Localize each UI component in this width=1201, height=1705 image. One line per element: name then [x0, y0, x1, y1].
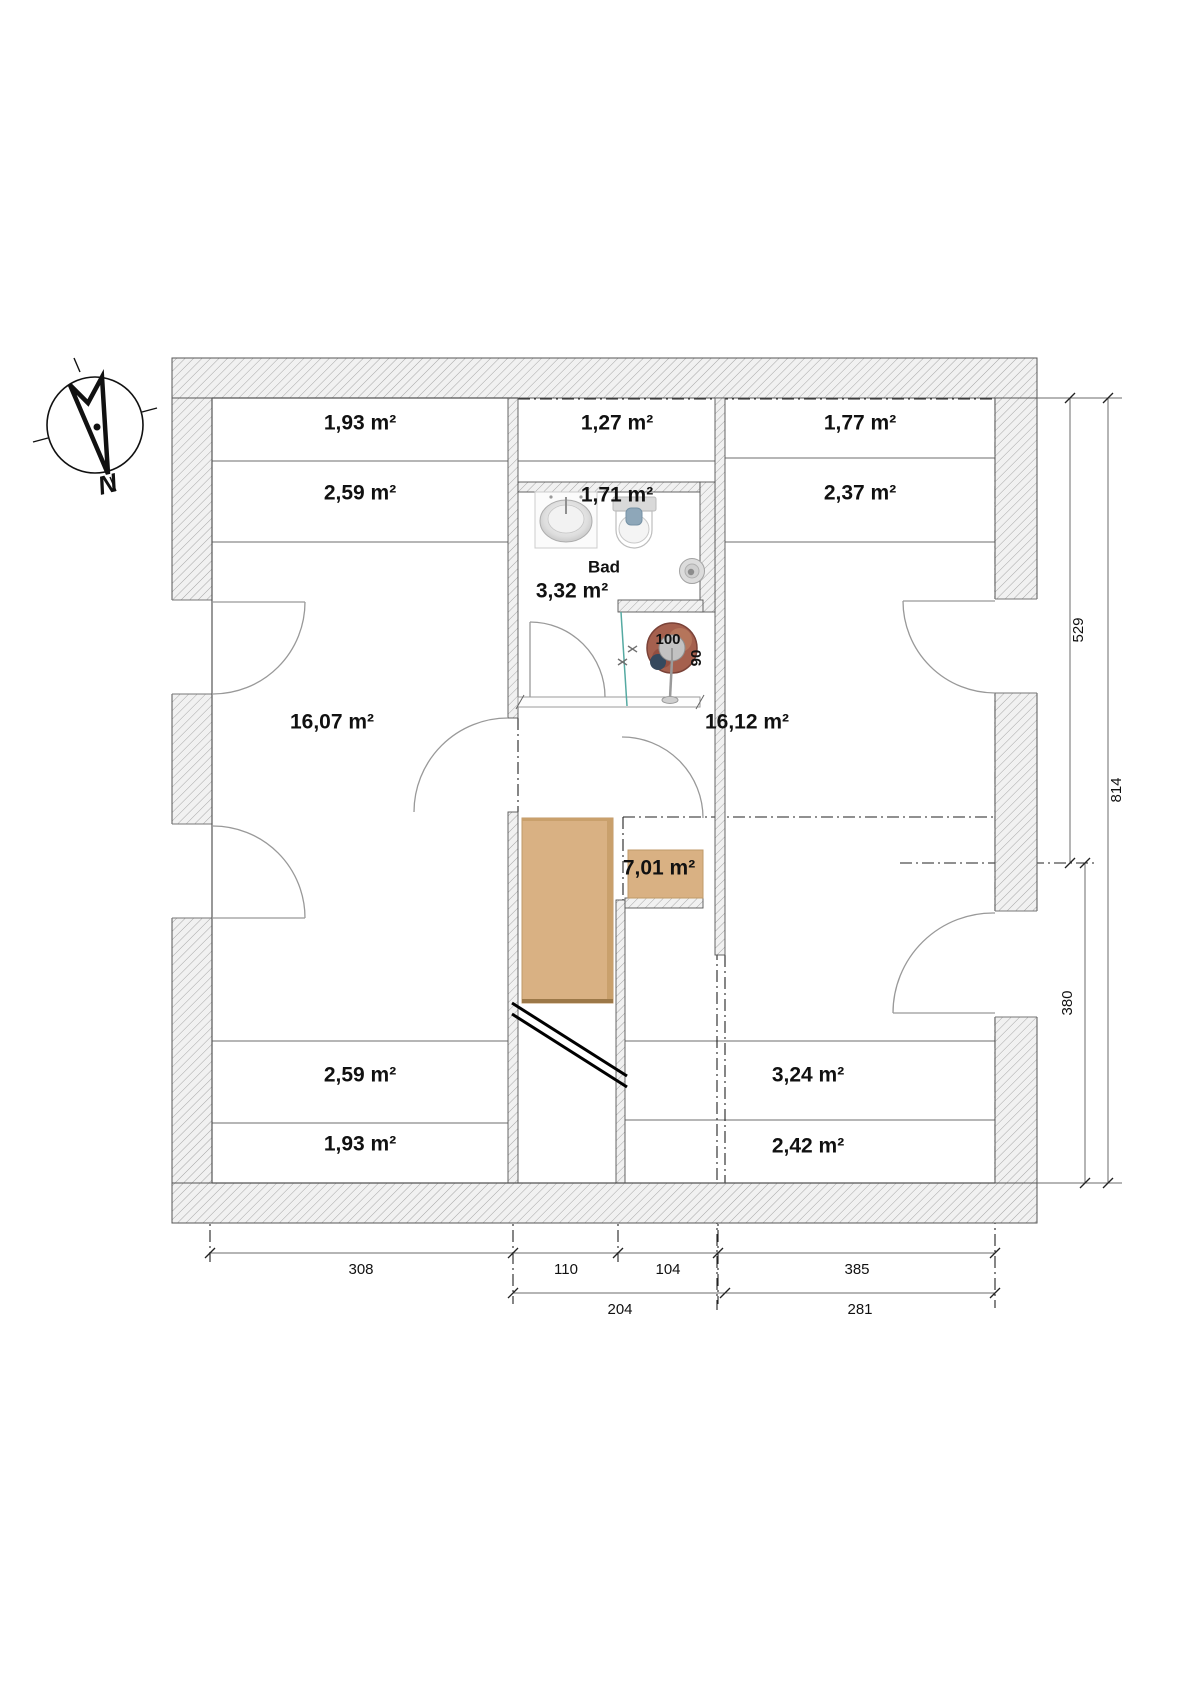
bottom-dimensions: 308 110 104 385 204 281	[205, 1248, 1000, 1318]
dimension-label: 308	[348, 1261, 373, 1278]
toilet-seat	[626, 508, 642, 525]
right-dimensions: 529 814 380	[1037, 393, 1125, 1188]
dimension-label: 529	[1070, 617, 1087, 642]
wall-top	[172, 358, 1037, 398]
shower-width-label: 100	[655, 631, 680, 648]
room-label: 2,42 m²	[772, 1135, 844, 1158]
floor-plan-canvas: 1,93 m² 2,59 m² 1,27 m² 1,71 m² 1,77 m² …	[0, 0, 1201, 1700]
dimension-label: 385	[844, 1261, 869, 1278]
dimension-label: 380	[1059, 990, 1076, 1015]
floor-plan-page: 1,93 m² 2,59 m² 1,27 m² 1,71 m² 1,77 m² …	[0, 0, 1201, 1700]
stair-break-lines	[512, 1003, 627, 1087]
dimension-label: 110	[554, 1261, 578, 1278]
dimension-label: 814	[1108, 777, 1125, 802]
room-label: 1,93 m²	[324, 412, 396, 435]
room-label: 3,24 m²	[772, 1064, 844, 1087]
room-label: 2,59 m²	[324, 482, 396, 505]
north-label: N	[95, 467, 122, 501]
dimension-label: 104	[655, 1261, 680, 1278]
wall-drain-knob	[680, 559, 705, 584]
wall-left	[172, 398, 212, 1183]
room-label: 7,01 m²	[623, 857, 695, 880]
dimension-label: 281	[847, 1301, 872, 1318]
wall-right	[995, 398, 1037, 1183]
room-label: 16,12 m²	[705, 711, 789, 734]
room-label: 16,07 m²	[290, 711, 374, 734]
staircase	[522, 818, 613, 1003]
measure-line	[618, 612, 637, 706]
door-arc	[213, 602, 305, 694]
room-label: 1,71 m²	[581, 484, 653, 507]
room-label: 1,93 m²	[324, 1133, 396, 1156]
shower-depth-label: 90	[688, 650, 705, 667]
room-label: 3,32 m²	[536, 580, 608, 603]
room-label: 2,37 m²	[824, 482, 896, 505]
wall-bottom	[172, 1183, 1037, 1223]
bathroom-name-label: Bad	[588, 557, 620, 576]
room-label: 2,59 m²	[324, 1064, 396, 1087]
north-compass: N	[33, 358, 157, 501]
room-label: 1,27 m²	[581, 412, 653, 435]
north-arrow-icon	[70, 377, 108, 474]
dimension-label: 204	[607, 1301, 632, 1318]
room-label: 1,77 m²	[824, 412, 896, 435]
